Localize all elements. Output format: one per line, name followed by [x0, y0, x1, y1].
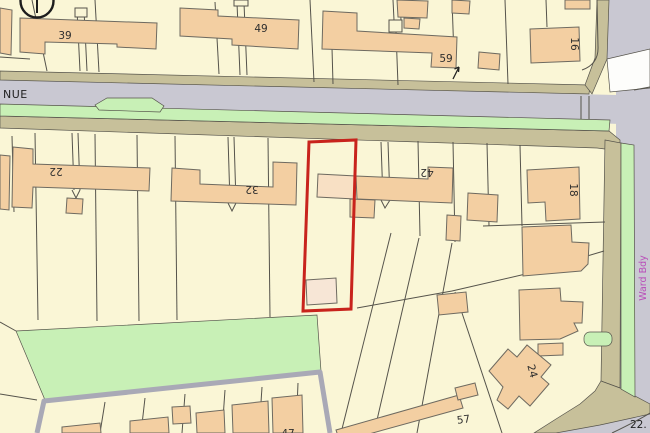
house-label-42: 42 [420, 166, 433, 178]
house-label-32: 32 [245, 183, 258, 195]
house-label-47: 47 [281, 428, 294, 433]
house-label-39: 39 [58, 30, 71, 42]
building-in-plot [317, 174, 356, 199]
boundary-label-Ward-Bdy: Ward Bdy [638, 255, 649, 301]
house-label-49: 49 [254, 23, 267, 35]
spot-label-22-: 22. [630, 419, 647, 431]
green-strip-end [584, 332, 612, 346]
street-label-NUE: NUE [3, 88, 28, 101]
site-plan-map: 3949591622324218245747NUEWard Bdy22. [0, 0, 650, 433]
house-label-18: 18 [567, 183, 579, 196]
house-label-57: 57 [456, 413, 471, 427]
house-label-59: 59 [439, 53, 452, 65]
plot-outbuilding [306, 278, 337, 305]
map-canvas: 3949591622324218245747NUEWard Bdy22. [0, 0, 650, 433]
house-label-22: 22 [49, 165, 62, 177]
house-label-16: 16 [568, 37, 580, 51]
